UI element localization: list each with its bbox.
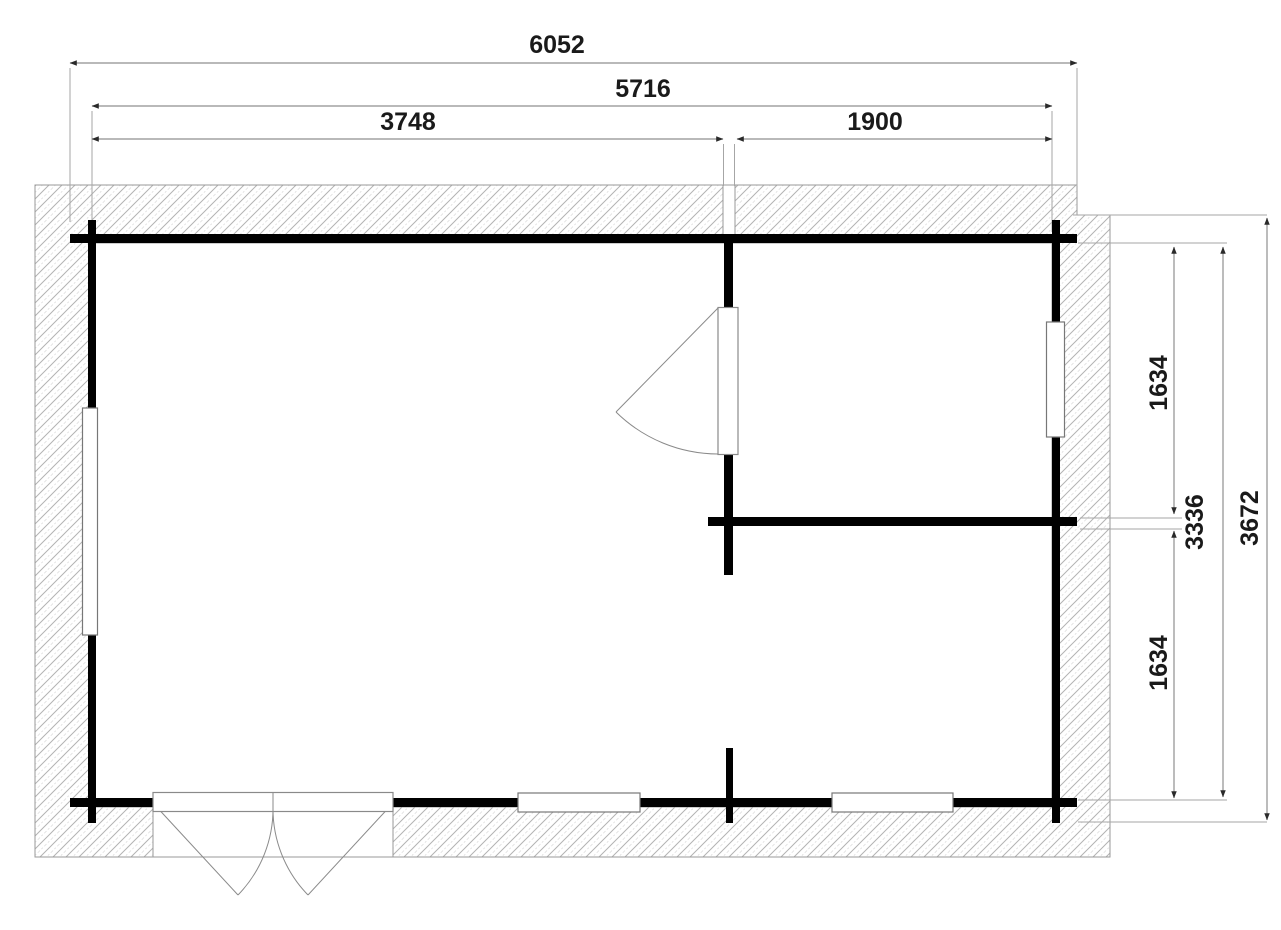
dimension-label-left-section: 3748: [380, 108, 436, 136]
dimension-label-lower-room-depth: 1634: [1145, 635, 1173, 691]
interior-door-swing-arc: [616, 412, 718, 454]
dimension-label-inner-width: 5716: [615, 75, 671, 103]
dimension-label-overall-depth: 3672: [1236, 490, 1264, 546]
window-left-wall: [83, 408, 98, 635]
windows: [83, 322, 1065, 812]
entrance-door-left-swing-arc: [238, 806, 273, 895]
floor-plan-canvas: 6052 5716 3748 1900 1634 3336 3672 1634: [0, 0, 1281, 930]
window-bottom-right: [832, 793, 953, 812]
dimension-label-inner-depth: 3336: [1181, 494, 1209, 550]
interior-door: [616, 308, 738, 455]
dimension-label-upper-room-depth: 1634: [1145, 355, 1173, 411]
entrance-door-left-open-position: [153, 803, 238, 895]
entrance-door-right-swing-arc: [273, 806, 308, 895]
dimension-labels: 6052 5716 3748 1900 1634 3336 3672 1634: [380, 31, 1264, 691]
entrance-double-door: [153, 793, 393, 896]
dimension-label-right-section: 1900: [847, 108, 903, 136]
interior-door-open-position: [616, 308, 718, 412]
interior-door-leaf: [718, 308, 738, 455]
window-right-wall: [1047, 322, 1065, 437]
walls: [70, 220, 1077, 823]
entrance-door-right-open-position: [308, 803, 393, 895]
dimension-label-overall-width: 6052: [529, 31, 585, 59]
floor-plan-drawing: 6052 5716 3748 1900 1634 3336 3672 1634: [0, 0, 1281, 930]
window-bottom-left: [518, 793, 640, 812]
